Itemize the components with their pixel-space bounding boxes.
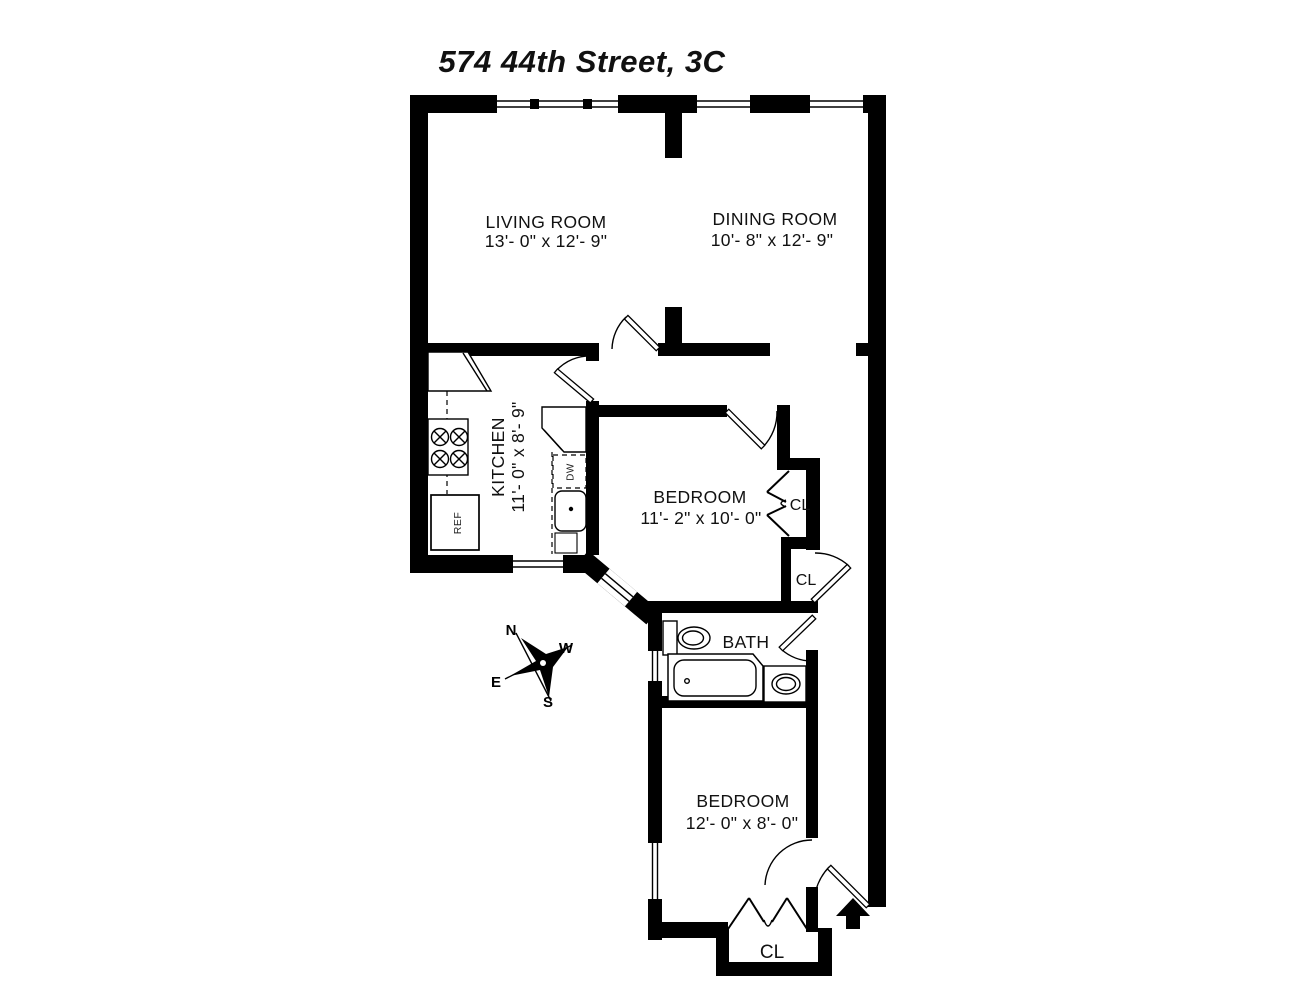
- wall-bath-top: [645, 601, 818, 613]
- wall-closet-divider: [781, 537, 820, 549]
- wall-closet3-bottom: [716, 962, 832, 976]
- bath-label: BATH: [723, 632, 770, 652]
- living-room-dims: 13'- 0" x 12'- 9": [485, 231, 607, 251]
- bedroom1-label: BEDROOM: [653, 487, 746, 507]
- door-leaf-closet2: [811, 564, 850, 602]
- bifold-closet1: [767, 471, 789, 536]
- compass-north: N: [506, 622, 517, 639]
- window-bedroom2: [648, 843, 662, 899]
- window-kitchen: [513, 555, 563, 573]
- floor-plan: REF DW: [0, 0, 1294, 1000]
- refrigerator: REF: [431, 495, 479, 550]
- kitchen-sink: [555, 491, 586, 531]
- bedroom2-dims: 12'- 0" x 8'- 0": [686, 813, 798, 833]
- door-arc-bedroom1: [763, 411, 777, 447]
- dining-room-dims: 10'- 8" x 12'- 9": [711, 230, 833, 250]
- closet2-label: CL: [796, 572, 817, 589]
- wall-stub-top: [665, 113, 682, 158]
- wall-right-outer: [868, 95, 886, 907]
- door-leaf-bedroom1: [725, 409, 765, 449]
- wall-kitchen-right-jamb: [586, 343, 599, 361]
- window-dining-2: [810, 95, 863, 113]
- living-room-label: LIVING ROOM: [485, 212, 606, 232]
- compass-west: W: [559, 640, 574, 657]
- wall-stub-bottom: [665, 307, 682, 343]
- labels: 574 44th Street, 3C LIVING ROOM 13'- 0" …: [439, 44, 838, 963]
- door-arc-bedroom2: [765, 840, 812, 885]
- door-arc-closet2: [815, 553, 849, 566]
- wall-kitchen-right: [586, 401, 599, 555]
- wall-bedroom1-right: [777, 405, 790, 470]
- wall-closet3-right: [818, 928, 832, 976]
- kitchen-label: KITCHEN: [488, 417, 508, 497]
- toilet: [663, 621, 710, 655]
- bath-sink: [764, 666, 806, 702]
- wall-bath-right: [806, 650, 818, 838]
- refrigerator-label: REF: [452, 512, 464, 535]
- bedroom2-label: BEDROOM: [696, 791, 789, 811]
- dishwasher-label: DW: [566, 463, 577, 481]
- compass-east: E: [491, 674, 501, 691]
- floor-plan-page: REF DW: [0, 0, 1294, 1000]
- closet3-label: CL: [760, 942, 784, 963]
- closet1-label: CL: [790, 497, 811, 514]
- door-leaf-entry: [827, 865, 869, 907]
- compass-rose: N W E S: [491, 622, 574, 711]
- bathtub: [668, 654, 763, 701]
- door-leaf-bath: [779, 615, 816, 651]
- window-bath: [648, 651, 662, 681]
- compass-south: S: [543, 694, 553, 711]
- wall-dining-bottom-stub: [856, 343, 868, 356]
- stove: [428, 419, 468, 475]
- bifold-closet3: [728, 898, 807, 929]
- wall-bedroom2-right-lower: [806, 887, 818, 932]
- window-dining-1: [697, 95, 750, 113]
- door-leaf-kitchen: [554, 369, 593, 403]
- kitchen-counter-end: [555, 533, 577, 553]
- door-arc-living: [612, 317, 626, 349]
- wall-diagonal: [576, 551, 659, 625]
- kitchen-dims: 11'- 0" x 8'- 9": [508, 401, 528, 512]
- door-leaf-living: [624, 315, 659, 350]
- dishwasher: DW: [553, 455, 586, 488]
- corner-cabinet-right: [542, 407, 586, 452]
- wall-bedroom1-top: [592, 405, 727, 417]
- page-title: 574 44th Street, 3C: [439, 44, 726, 79]
- bedroom1-dims: 11'- 2" x 10'- 0": [640, 508, 761, 528]
- wall-living-bottom-right: [658, 343, 770, 356]
- window-living: [497, 95, 618, 113]
- dining-room-label: DINING ROOM: [713, 209, 838, 229]
- corner-cabinet-left: [428, 352, 491, 391]
- wall-left: [410, 95, 428, 573]
